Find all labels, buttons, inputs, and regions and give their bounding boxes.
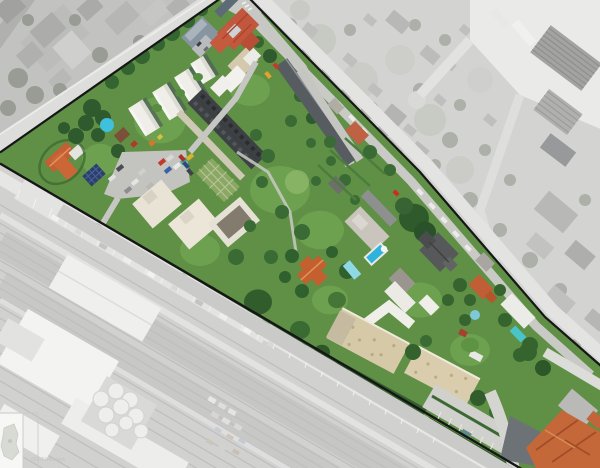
svg-text:GIS-Steiermark: GIS-Steiermark [31, 457, 66, 463]
